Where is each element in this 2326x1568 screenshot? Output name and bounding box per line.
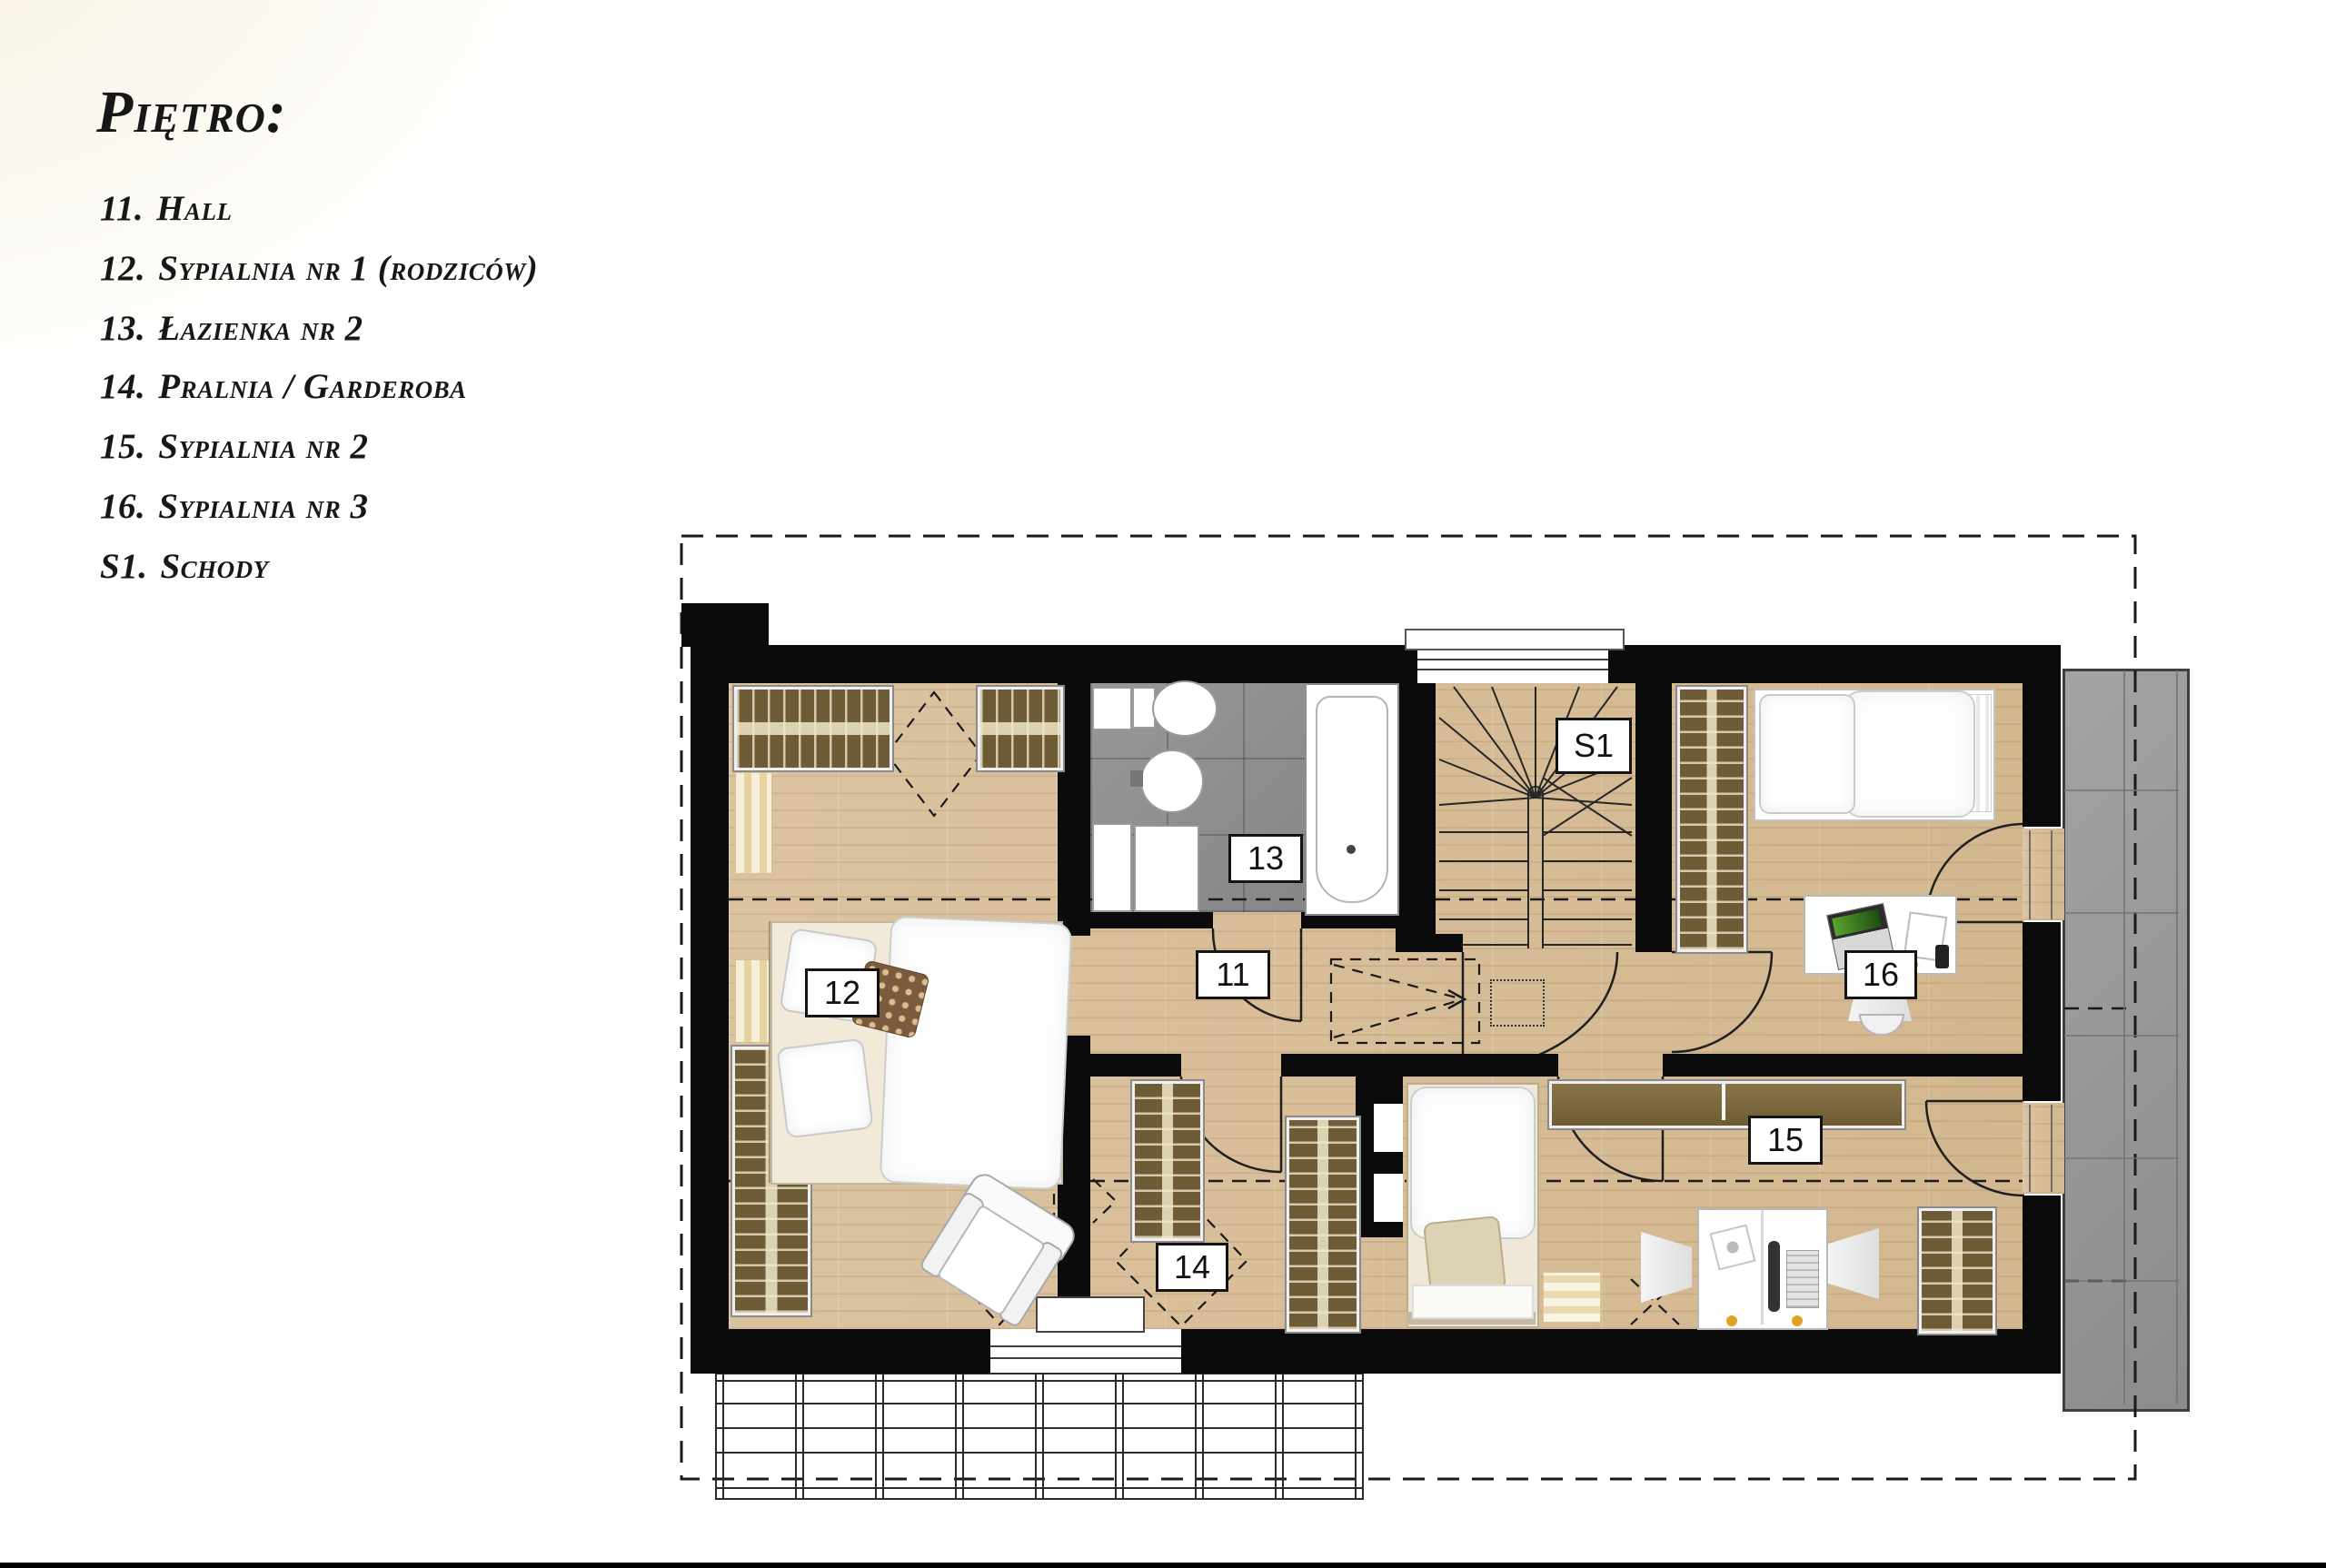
wardrobe-room14-left (1132, 1081, 1203, 1241)
legend-item-15-num: 15. (100, 427, 145, 466)
rug-room15 (1543, 1272, 1601, 1323)
legend: Piętro: 11.Hall 12.Sypialnia nr 1 (rodzi… (96, 80, 287, 146)
door-room-16 (1672, 952, 1772, 1052)
wall-top-step (681, 603, 769, 647)
legend-item-16-num: 16. (100, 487, 145, 526)
laptop-screen (1832, 908, 1882, 936)
wall-top-right (1608, 645, 2061, 683)
bed12-duvet (880, 916, 1073, 1190)
wall-right-1 (2023, 645, 2061, 827)
wall-niche-1 (1374, 1104, 1403, 1152)
bed15-sheet (1412, 1285, 1534, 1319)
legend-item-16: 16.Sypialnia nr 3 (100, 489, 368, 524)
monitor-room15 (1768, 1241, 1780, 1312)
room-label-bedroom-15: 15 (1748, 1116, 1823, 1165)
floor-plan: 11 12 13 14 15 16 S1 (0, 0, 2326, 1568)
legend-item-12-num: 12. (100, 249, 145, 288)
bathtub-basin (1316, 696, 1388, 903)
radiator-room12-lower (735, 959, 772, 1043)
bathroom-cabinet-2 (1134, 825, 1199, 912)
sink-basin (1140, 749, 1204, 813)
wall-bottom-left (691, 1329, 990, 1374)
screen-bottom-bar (0, 1563, 2326, 1568)
wall-bathroom-bottom-left (1058, 912, 1213, 928)
desk-panel-divider (1761, 1210, 1764, 1325)
radiator-room12-upper (735, 772, 772, 874)
wall-stairs-bottom (1417, 934, 1463, 952)
wall-bottom-right (1181, 1329, 2061, 1374)
slope-chevron-room14 (1093, 1179, 1116, 1223)
wardrobe-room12-top-left (734, 687, 892, 770)
bed16-duvet (1844, 690, 1975, 818)
wardrobe-room15 (1919, 1208, 1995, 1334)
legend-item-12: 12.Sypialnia nr 1 (rodziców) (100, 251, 538, 286)
sink-tap (1130, 770, 1143, 787)
legend-item-14-label: Pralnia / Garderoba (158, 367, 466, 406)
legend-item-13-num: 13. (100, 309, 145, 348)
straight-treads (1439, 832, 1632, 945)
bathtub-drain (1347, 845, 1356, 854)
legend-item-13: 13.Łazienka nr 2 (100, 311, 363, 346)
wardrobe-room14-right (1287, 1117, 1359, 1332)
window-bottom-sill (1036, 1296, 1145, 1333)
wall-top-left (691, 645, 1417, 683)
window-top-frame (1417, 660, 1608, 670)
wall-bathroom-stairs (1396, 683, 1436, 952)
bed16-pillow (1759, 694, 1855, 814)
shelf-divider (1722, 1084, 1725, 1120)
legend-item-16-label: Sypialnia nr 3 (158, 487, 368, 526)
room-label-laundry-14: 14 (1156, 1243, 1228, 1292)
wall-room16-room15 (1663, 1054, 2024, 1077)
legend-item-15: 15.Sypialnia nr 2 (100, 429, 368, 464)
legend-item-15-label: Sypialnia nr 2 (158, 427, 368, 466)
desk-dot-1 (1726, 1315, 1737, 1326)
keyboard-room15 (1786, 1250, 1819, 1308)
room-label-bedroom-12: 12 (805, 968, 880, 1017)
balcony-tile-grid (2064, 670, 2179, 1404)
room-label-stairs-s1: S1 (1556, 718, 1632, 774)
shelf-room15 (1549, 1081, 1904, 1128)
wall-niche-2 (1374, 1174, 1403, 1222)
wall-hall-south-2 (1281, 1054, 1558, 1077)
wall-stairs-room16 (1635, 683, 1672, 952)
legend-item-s1-label: Schody (160, 547, 268, 586)
wall-right-2 (2023, 922, 2061, 1101)
legend-item-s1: S1.Schody (100, 549, 269, 584)
bed15-duvet (1410, 1087, 1536, 1239)
legend-title: Piętro: (96, 80, 287, 146)
wall-right-3 (2023, 1196, 2061, 1374)
legend-item-14: 14.Pralnia / Garderoba (100, 369, 467, 404)
room-label-bathroom-13: 13 (1228, 834, 1303, 883)
legend-item-11-num: 11. (100, 189, 144, 228)
legend-item-s1-num: S1. (100, 547, 147, 586)
wardrobe-room16 (1677, 687, 1746, 952)
window-bottom-frame (990, 1346, 1181, 1358)
legend-item-11: 11.Hall (100, 191, 232, 226)
window-top-sill (1405, 629, 1625, 650)
hall-dotted-opening (1490, 979, 1545, 1027)
wall-hall-south-1 (1058, 1054, 1181, 1077)
wardrobe-room12-top-right (978, 687, 1063, 770)
stair-break-lines (1543, 778, 1632, 836)
slope-diamond-room12-top (887, 692, 981, 816)
legend-item-14-num: 14. (100, 367, 145, 406)
stair-spine (1528, 787, 1543, 948)
room-label-hall-11: 11 (1196, 950, 1270, 999)
legend-item-11-label: Hall (156, 189, 232, 228)
bathroom-cabinet-1 (1092, 823, 1132, 912)
phone-room16 (1935, 945, 1949, 968)
legend-item-12-label: Sypialnia nr 1 (rodziców) (158, 249, 538, 288)
wall-left (691, 683, 729, 1374)
bathroom-shelf (1092, 687, 1132, 730)
desk-dot-2 (1792, 1315, 1803, 1326)
room-label-bedroom-16: 16 (1844, 950, 1917, 999)
hall-ceiling-hatch-dashed (1331, 959, 1479, 1043)
legend-item-13-label: Łazienka nr 2 (158, 309, 363, 348)
toilet-bowl (1152, 680, 1218, 737)
bed12-pillow-2 (776, 1038, 873, 1139)
